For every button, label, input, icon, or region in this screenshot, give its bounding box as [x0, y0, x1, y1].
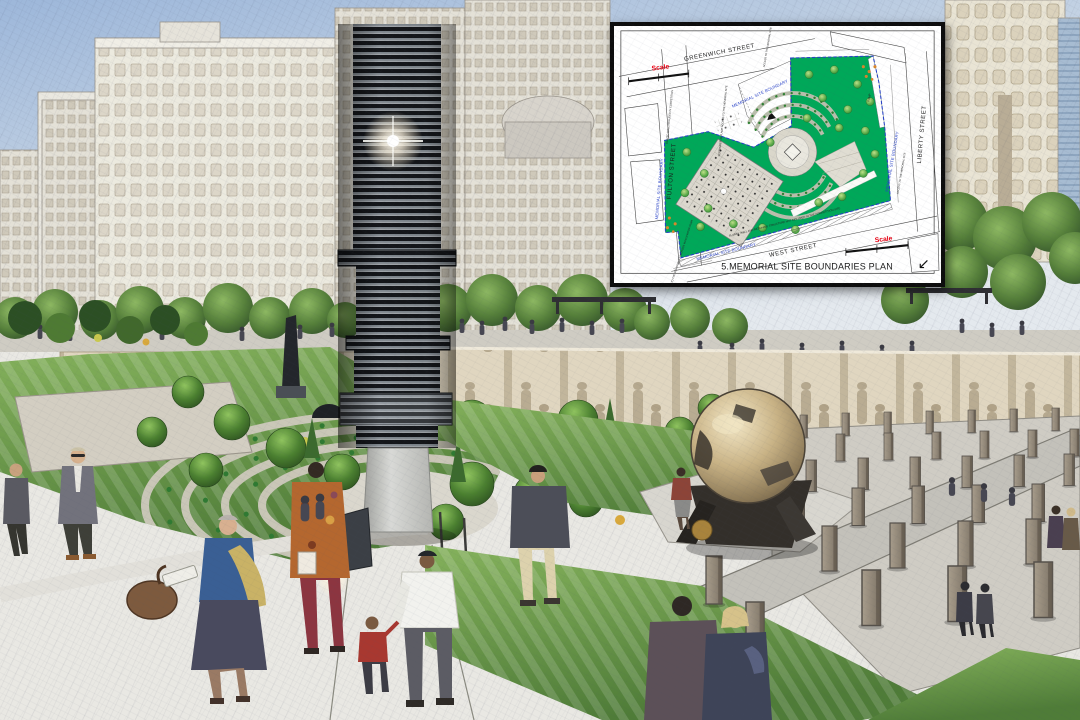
spire-pedestal [363, 448, 433, 532]
beacon-flare [363, 111, 423, 171]
site-plan-drawing: GREENWICH STREET FULTON STREET LIBERTY S… [614, 26, 941, 283]
memorial-rendering: GREENWICH STREET FULTON STREET LIBERTY S… [0, 0, 1080, 720]
north-arrow-icon: ↙ [918, 256, 930, 272]
site-plan-inset: GREENWICH STREET FULTON STREET LIBERTY S… [610, 22, 945, 287]
plan-title: 5.MEMORIAL SITE BOUNDARIES PLAN [721, 261, 893, 271]
